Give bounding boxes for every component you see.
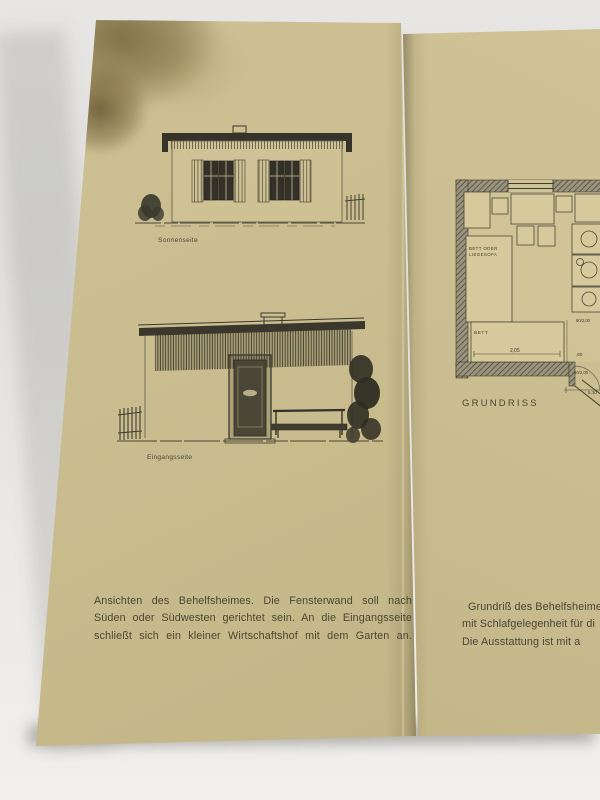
kitchen-counter [575,194,600,222]
paper-speck [160,754,164,758]
shrub [346,355,381,443]
photo-of-brochure: { "photo": { "background_color": "#e7e6e… [0,0,600,800]
caption-line: Grundriß des Behelfsheime [462,599,600,616]
elevation-drawing-sun-side: Sonnenseite [125,116,375,251]
bush [138,194,164,221]
bed [471,322,564,362]
label-eingangsseite: Eingangsseite [147,454,192,461]
caption-left: Ansichten des Behelfsheimes. Die Fenster… [94,593,412,645]
dim-door-lower: 90/2,00 [574,370,589,375]
caption-right: Grundriß des Behelfsheime mit Schlafgele… [462,599,600,651]
fence [345,194,365,220]
window-symbol [508,180,553,192]
caption-line: mit Schlafgelegenheit für di [462,616,600,633]
label-grundriss: GRUNDRISS [462,398,539,409]
wardrobe [464,192,490,228]
dim-bed-width: 2,05 [510,348,520,354]
dim-overall: 5,10 [588,390,597,395]
dim-door-upper: 80/2,00 [576,318,591,323]
label-bed-sofa-2: LIEGESOFA [469,252,497,257]
wall-bottom [456,362,569,376]
label-bed-sofa-1: BETT ODER [469,246,498,251]
table [511,194,554,224]
chimney [233,126,246,133]
caption-line: schließt sich ein kleiner Wirtschaftshof… [94,628,412,645]
elevation-drawing-entrance-side: Eingangsseite [115,305,395,467]
chair [538,226,555,246]
caption-line: Die Ausstattung ist mit a [462,634,600,651]
dim-opening: ,90 [576,352,583,357]
roof-end-right [346,133,352,152]
stove [572,224,600,254]
chair [517,226,534,245]
floor-plan-drawing: BETT ODER LIEGESOFA BETT 2,05 ,90 80/2,0… [448,170,600,420]
roof-end-left [162,133,168,152]
label-sonnenseite: Sonnenseite [158,237,198,244]
caption-line: Ansichten des Behelfsheimes. Die Fenster… [94,593,412,610]
roof [162,133,352,141]
sink-unit [572,255,600,286]
bench [271,410,347,438]
label-bed: BETT [474,330,488,336]
chair [492,198,508,214]
entrance-door [225,355,275,443]
paper-speck [262,766,267,771]
fence [118,406,142,440]
chair [556,196,572,212]
caption-line: Süden oder Südwesten gerichtet sein. An … [94,610,412,627]
